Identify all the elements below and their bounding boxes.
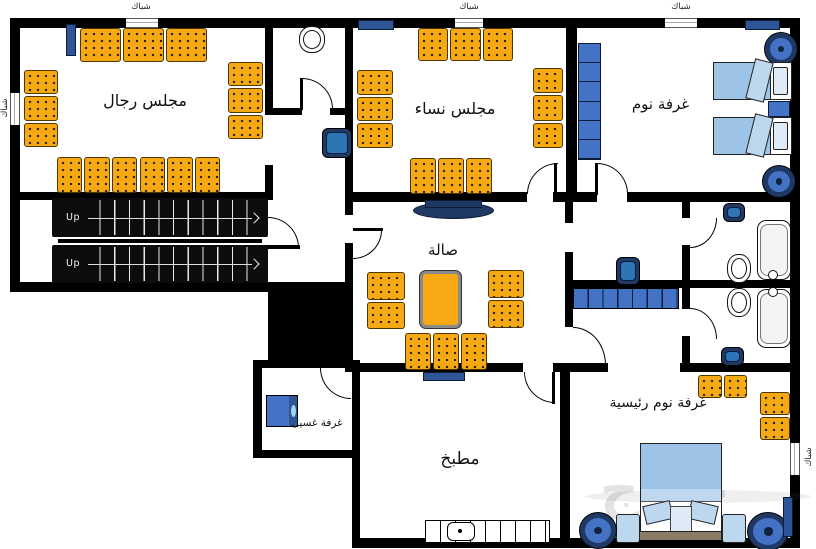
kitchen-sink [447, 522, 475, 541]
kitchen-counter [425, 520, 550, 543]
plant-pot [765, 33, 797, 65]
nightstand [722, 514, 746, 543]
sofa [57, 157, 137, 193]
sofa [405, 333, 487, 370]
shower-fitting [768, 287, 778, 297]
sink [322, 128, 352, 158]
stairs-up-label: Up [66, 211, 80, 222]
door-leaf [554, 163, 557, 195]
sink [723, 203, 745, 222]
sofa [533, 68, 563, 148]
ac-unit [66, 24, 76, 56]
pillow [670, 506, 692, 532]
toilet [299, 26, 325, 53]
window-label: شباك [0, 95, 10, 121]
door-leaf [300, 78, 303, 110]
stair-divider [58, 239, 262, 243]
wall [345, 243, 353, 282]
door-arc [690, 308, 717, 339]
coffee-table [420, 271, 461, 328]
toilet [727, 288, 751, 317]
wall [682, 245, 690, 309]
shelf [358, 20, 394, 30]
room-label-laundry: غرفة غسيل [284, 418, 350, 430]
sofa [24, 70, 58, 147]
door-arc [302, 78, 333, 109]
window [10, 93, 20, 125]
door-arc [268, 217, 299, 248]
room-label-master-bedroom: غرفة نوم رئيسية [588, 396, 728, 411]
single-bed [713, 62, 792, 100]
window-label: شباك [123, 2, 159, 12]
window [455, 18, 483, 28]
sofa [410, 158, 492, 194]
wall [627, 192, 790, 202]
wall [345, 18, 353, 215]
room-label-majlis-rijal: مجلس رجال [85, 92, 205, 110]
wall [566, 18, 577, 202]
staircase: Up [52, 245, 268, 283]
window [126, 18, 158, 28]
wall [565, 252, 573, 327]
washer-door [291, 405, 296, 417]
nightstand [768, 101, 790, 117]
room-label-bedroom: غرفة نوم [618, 96, 703, 113]
room-label-kitchen: مطبخ [428, 450, 492, 469]
plant-pot [580, 513, 616, 548]
shelf [423, 372, 465, 381]
window-label: شباك [804, 444, 814, 470]
nightstand [616, 514, 640, 543]
wall-cabinet [783, 497, 793, 537]
sofa [760, 392, 790, 440]
sofa [418, 28, 513, 61]
faucet [458, 529, 462, 533]
wall [265, 108, 302, 115]
room-label-majlis-nisa: مجلس نساء [395, 100, 515, 118]
bathtub [757, 289, 791, 348]
sofa [367, 272, 405, 329]
sofa [488, 270, 524, 328]
window-label: شباك [663, 2, 699, 12]
wall [553, 192, 597, 202]
room-label-hall: صالة [413, 242, 473, 259]
wall [682, 202, 690, 218]
wall [253, 360, 262, 458]
door-arc [573, 327, 606, 365]
stair-direction-line [88, 264, 252, 265]
wall [330, 108, 353, 115]
window [790, 443, 800, 475]
door-leaf [595, 163, 598, 195]
sofa [228, 62, 263, 139]
door-leaf [266, 245, 300, 249]
shaft [268, 282, 353, 368]
stair-direction-line [88, 218, 252, 219]
bed-fold [641, 489, 721, 502]
door-leaf [353, 228, 383, 231]
closet [573, 288, 679, 309]
sink [721, 347, 744, 366]
wall [560, 372, 570, 538]
plant-pot [748, 513, 788, 549]
door-arc [690, 218, 717, 248]
floor-plan: شباك شباك شباك شباك شباك Up Up مجلس رجال [0, 0, 816, 549]
wall [265, 165, 273, 200]
sofa [357, 70, 393, 148]
double-bed [640, 443, 722, 540]
wall [682, 336, 690, 363]
wall [10, 282, 268, 292]
wall [565, 202, 573, 223]
wall [253, 450, 360, 458]
door-leaf [552, 372, 555, 404]
headboard [640, 531, 721, 540]
door-arc [320, 368, 351, 399]
wall [10, 18, 20, 292]
door-arc [353, 230, 382, 259]
tv-console-top [425, 200, 482, 208]
bed-blanket [641, 444, 721, 490]
window-label: شباك [451, 2, 487, 12]
stairs-up-label: Up [66, 258, 80, 269]
wall [265, 18, 273, 110]
shower-fitting [768, 270, 778, 280]
toilet [727, 254, 751, 283]
plant-pot [763, 166, 795, 197]
door-arc [597, 163, 628, 194]
sink [616, 257, 640, 285]
door-arc [524, 372, 555, 403]
shelf [745, 20, 780, 30]
staircase: Up [52, 198, 268, 237]
sofa [80, 28, 207, 62]
wardrobe [578, 43, 601, 160]
sofa [140, 157, 220, 193]
wall [352, 368, 360, 545]
window [665, 18, 697, 28]
single-bed [713, 117, 792, 155]
